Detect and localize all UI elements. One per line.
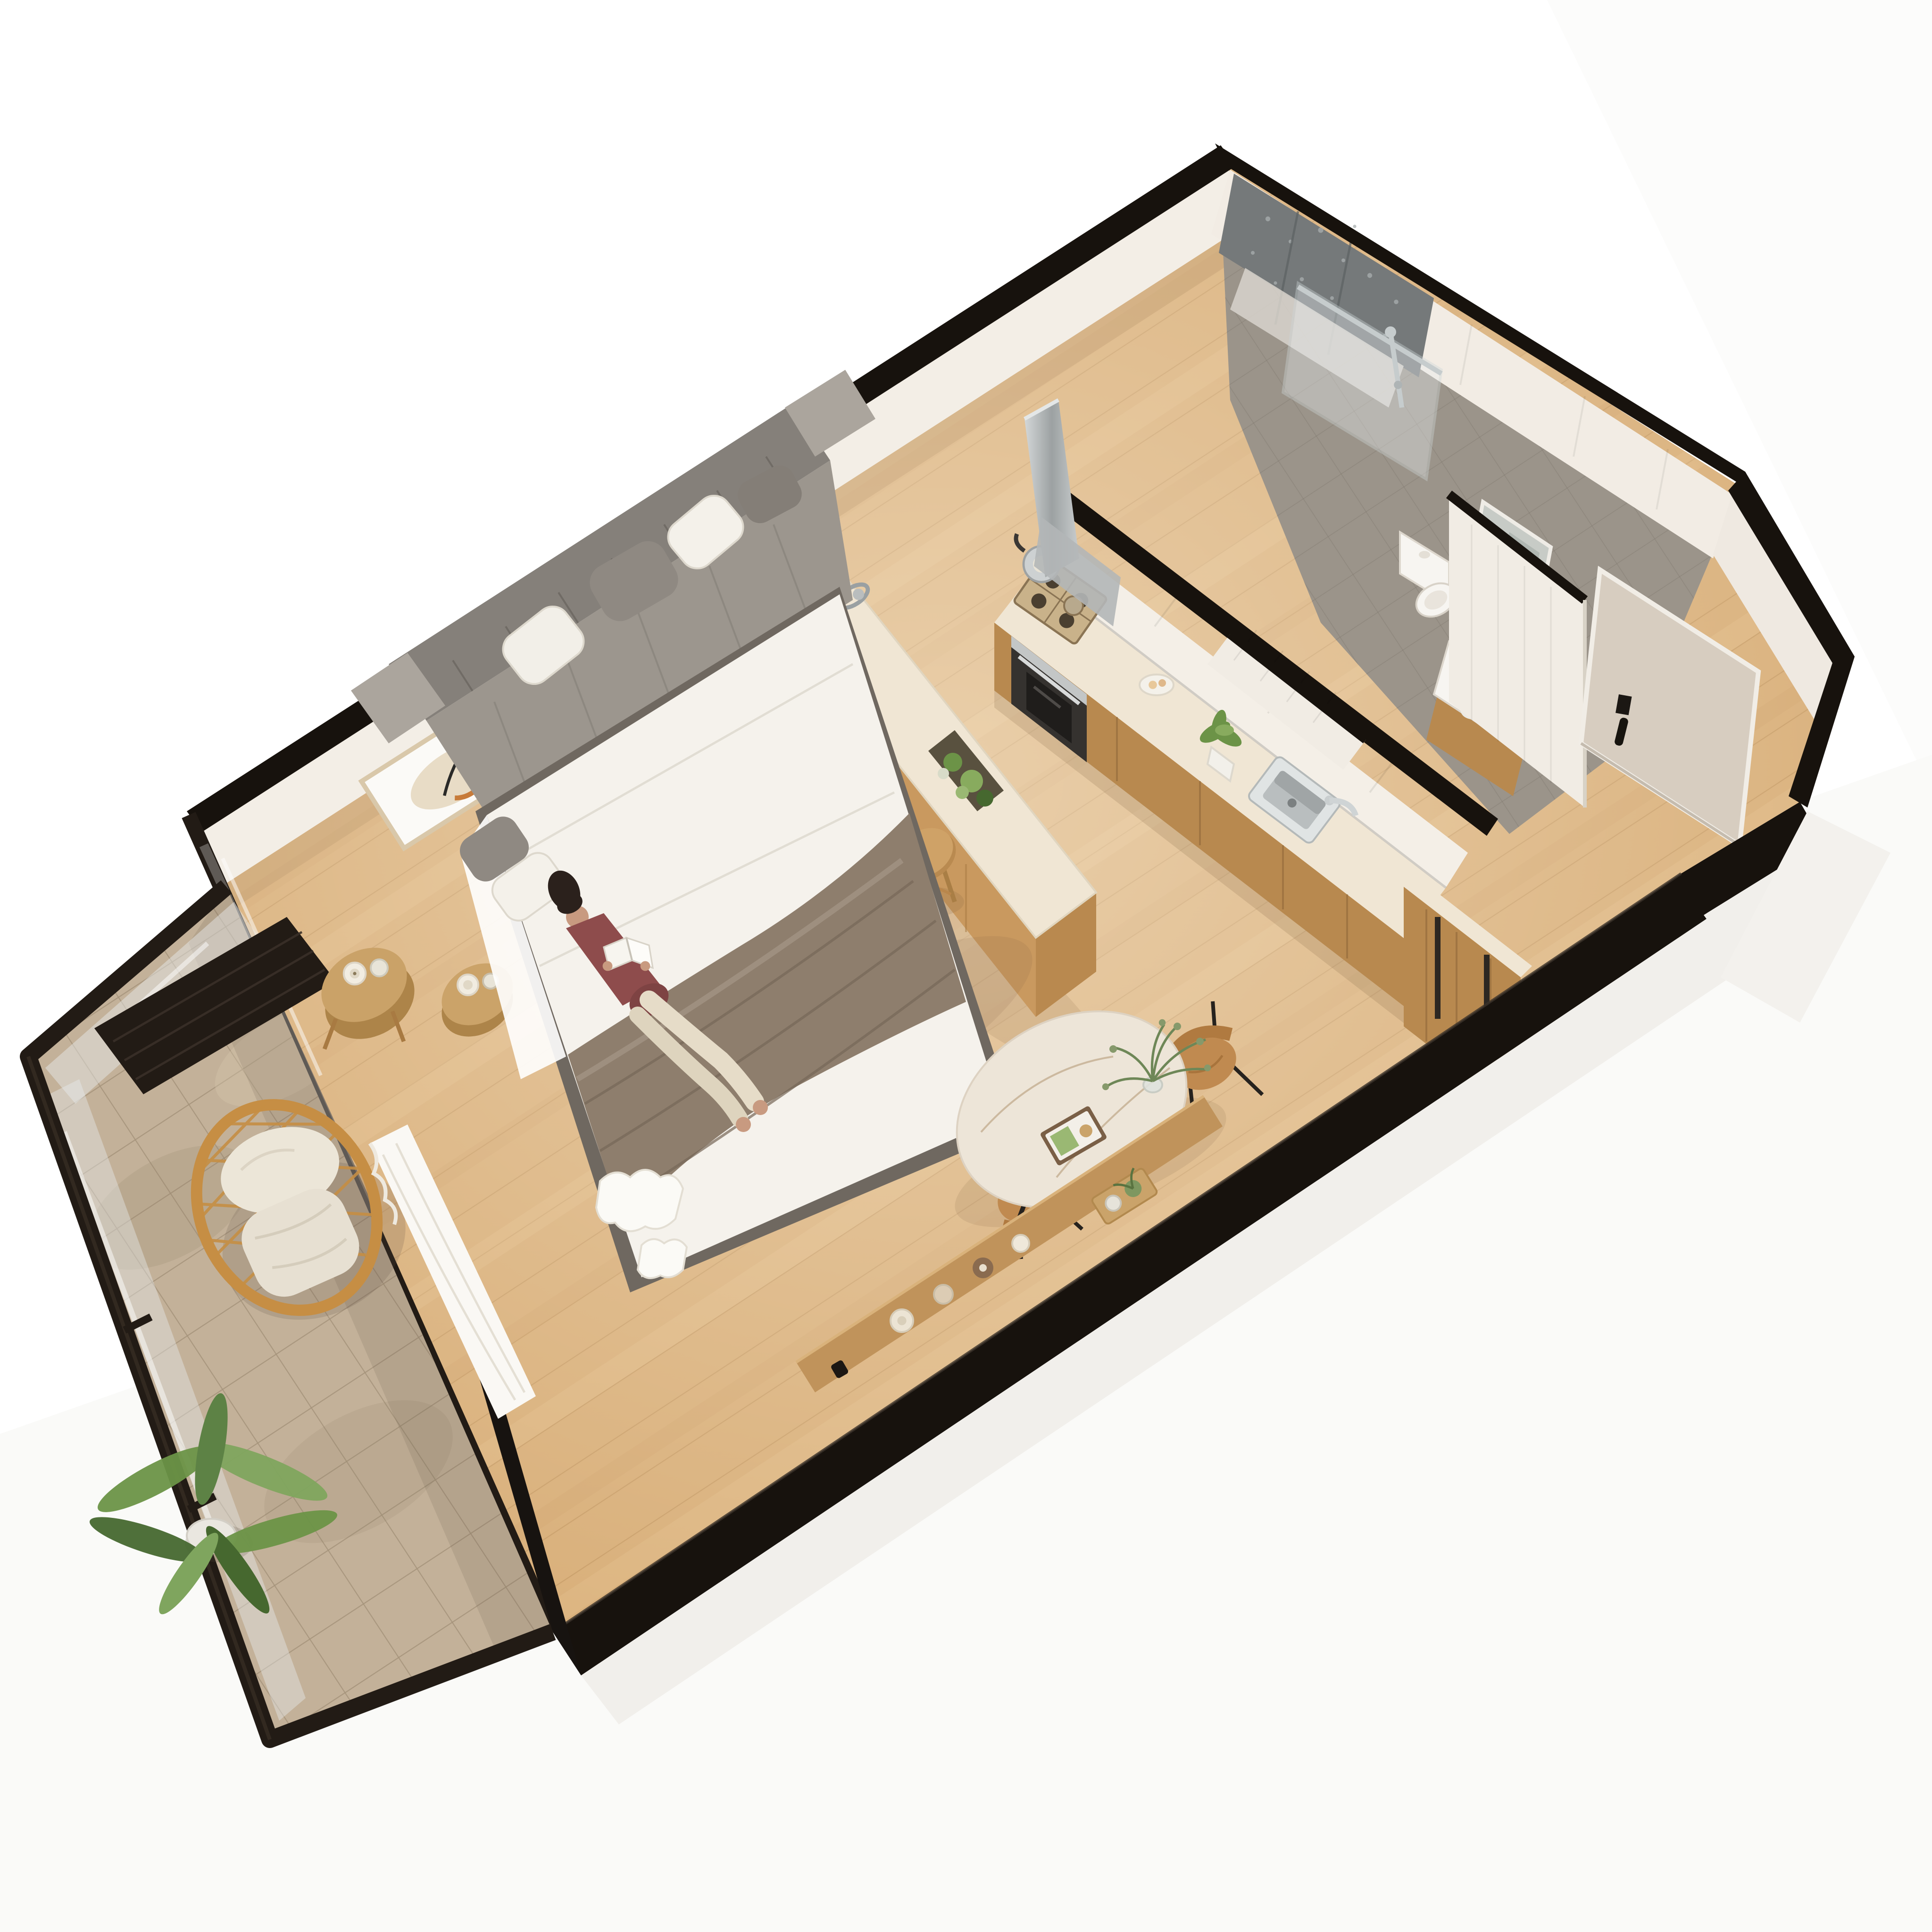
glass bbox=[371, 959, 388, 976]
apartment-scene bbox=[0, 0, 1932, 1932]
floorplan-render bbox=[0, 0, 1932, 1932]
counter-bowl bbox=[1140, 675, 1174, 695]
candle bbox=[934, 1285, 953, 1304]
foot bbox=[753, 1100, 768, 1115]
shower-valve bbox=[1394, 381, 1402, 389]
shower-head bbox=[1385, 326, 1396, 338]
foot bbox=[736, 1117, 751, 1132]
candle bbox=[1012, 1235, 1029, 1252]
